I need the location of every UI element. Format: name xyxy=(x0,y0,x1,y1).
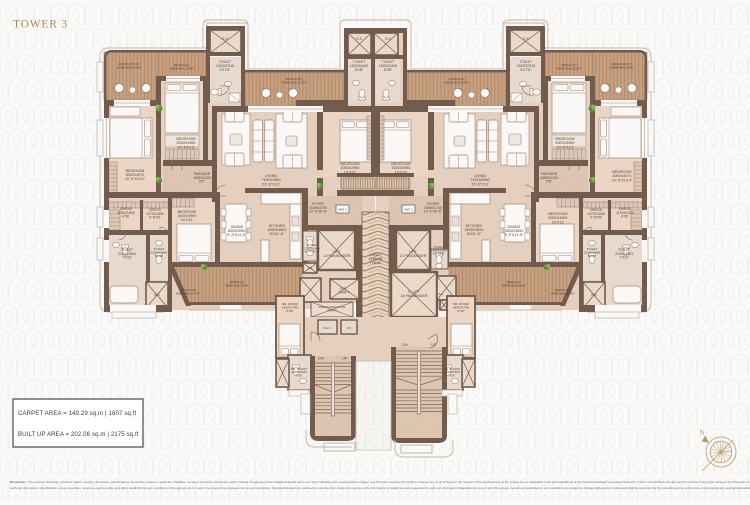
svg-text:S.S: S.S xyxy=(523,37,528,41)
svg-text:S.S: S.S xyxy=(439,292,444,296)
svg-text:S.S: S.S xyxy=(308,266,313,270)
svg-text:LOBBY2155MM7'WIDE: LOBBY2155MM7'WIDE xyxy=(369,253,383,265)
svg-text:S.S: S.S xyxy=(385,37,390,41)
svg-text:2820mm(9'-3")WIDE BALCONY: 2820mm(9'-3")WIDE BALCONY xyxy=(117,62,141,69)
svg-text:S.S: S.S xyxy=(222,37,227,41)
svg-text:S.S: S.S xyxy=(591,293,596,297)
svg-text:S.S: S.S xyxy=(154,293,159,297)
svg-text:BEDROOM3050X407010'-9"X13'4": BEDROOM3050X407010'-9"X13'4" xyxy=(612,170,633,182)
svg-text:KITCHEN2440X35008'X11'-6": KITCHEN2440X35008'X11'-6" xyxy=(268,224,287,236)
svg-text:UP: UP xyxy=(342,357,348,361)
svg-text:F.H.C: F.H.C xyxy=(323,326,332,330)
svg-text:verify all information, specif: verify all information, specifications, … xyxy=(10,486,750,490)
svg-text:2820mm(9'-3")WIDE BALCONY: 2820mm(9'-3")WIDE BALCONY xyxy=(610,62,634,69)
svg-text:BEDROOM3052X407010'-9"X13'4": BEDROOM3052X407010'-9"X13'4" xyxy=(125,169,146,181)
svg-text:UNIT 2: UNIT 2 xyxy=(338,208,347,212)
svg-text:UNIT 1: UNIT 1 xyxy=(404,208,413,212)
svg-text:S.S: S.S xyxy=(356,37,361,41)
svg-text:Disclaimer : The layouts, draw: Disclaimer : The layouts, drawings, loca… xyxy=(10,480,750,484)
svg-text:BEDROOM3000X396010'-6"X13': BEDROOM3000X396010'-6"X13' xyxy=(176,137,195,149)
svg-text:DN: DN xyxy=(318,357,324,361)
svg-text:BUILT UP AREA = 202.06 sq.m |: BUILT UP AREA = 202.06 sq.m | 2175 sq.ft xyxy=(18,431,139,438)
svg-text:DN: DN xyxy=(402,343,408,347)
svg-text:N: N xyxy=(699,429,704,437)
svg-text:TOWER 3: TOWER 3 xyxy=(13,19,68,31)
svg-text:KITCHEN2440X35008'X11'-6": KITCHEN2440X35008'X11'-6" xyxy=(465,224,484,236)
svg-text:CARPET AREA = 149.29 sq.m | 16: CARPET AREA = 149.29 sq.m | 1607 sq.ft xyxy=(18,410,136,417)
svg-text:BEDROOM3000X396010'-6"X13': BEDROOM3000X396010'-6"X13' xyxy=(555,137,574,149)
svg-text:UV: UV xyxy=(347,326,351,330)
